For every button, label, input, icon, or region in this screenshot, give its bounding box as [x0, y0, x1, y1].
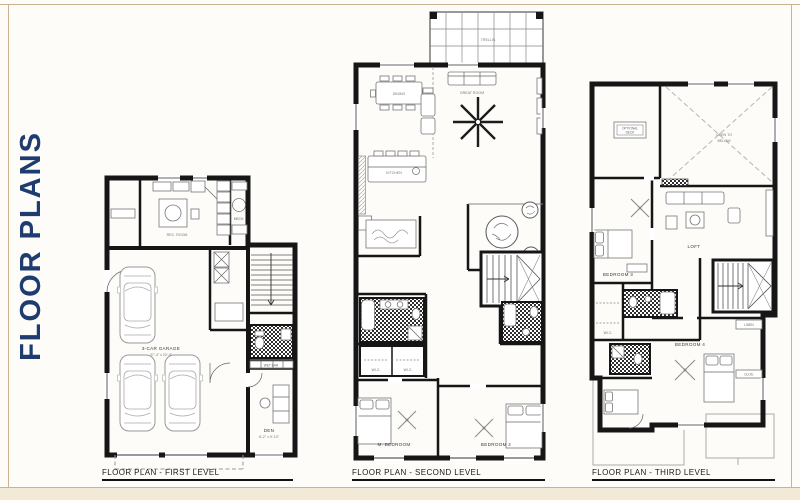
- study-nook: [366, 220, 416, 248]
- room-label: BEDROOM 4: [675, 342, 705, 347]
- sofa: [448, 72, 496, 85]
- second-level-caption: FLOOR PLAN - SECOND LEVEL: [352, 468, 545, 481]
- master-bathroom: [360, 298, 424, 342]
- walk-in-closet: W.I.C.: [596, 303, 620, 335]
- chair-icon: [260, 398, 270, 408]
- bathtub-icon: [660, 292, 675, 314]
- bathroom-2: [502, 302, 542, 342]
- first-level-plan: REC. ROOM MECH. 3-CAR GARAGE 37'-4" x 20…: [103, 173, 303, 473]
- mechanical-closet: MECH.: [232, 182, 247, 234]
- den: DEN 8'-2" x 9'-10": [259, 385, 289, 439]
- room-label: DINING: [393, 92, 406, 96]
- room-label: W.I.C.: [604, 331, 613, 335]
- water-heater-icon: [233, 199, 246, 212]
- den-door-gap: [246, 373, 250, 387]
- den-door-swing: [248, 373, 262, 387]
- third-level-plan: OPTIONAL DECK OPEN TO BELOW LOFT BEDRO: [588, 78, 784, 470]
- bathroom-a: [623, 264, 677, 317]
- room-label: TRELLIS: [481, 38, 496, 42]
- entry-bench: [111, 209, 135, 218]
- wet-bar: WET BAR: [250, 361, 293, 368]
- toilet-icon: [255, 337, 264, 349]
- first-level-caption: FLOOR PLAN - FIRST LEVEL: [102, 468, 293, 481]
- optional-room-label-box: OPTIONAL DECK: [614, 122, 646, 138]
- bedroom-2: BEDROOM 2: [475, 404, 542, 448]
- tree-icon: [486, 216, 518, 248]
- sink-icon: [281, 329, 291, 340]
- sink-icon: [523, 329, 530, 336]
- toilet-icon: [530, 307, 538, 318]
- tree-icon: [522, 202, 538, 218]
- laundry-room: [214, 252, 243, 321]
- toilet-icon: [629, 297, 637, 308]
- first-level-plan-drawing: REC. ROOM MECH. 3-CAR GARAGE 37'-4" x 20…: [103, 173, 303, 473]
- sink-icon: [645, 296, 651, 302]
- room-dimension: 37'-4" x 20'-8": [150, 353, 173, 357]
- bedroom-4: BEDROOM 4: [675, 342, 734, 402]
- door-gap: [683, 316, 697, 321]
- room-label: LINEN: [744, 323, 754, 327]
- kitchen: KITCHEN: [359, 151, 427, 230]
- sofa: [666, 192, 724, 204]
- ceiling-fan-icon: [675, 360, 695, 380]
- room-label: OPEN TO: [716, 133, 732, 137]
- trellis-post: [536, 12, 543, 19]
- room-label: LOFT: [688, 244, 701, 249]
- garage: 3-CAR GARAGE 37'-4" x 20'-8": [118, 267, 203, 431]
- staircase: [713, 260, 773, 312]
- rec-room-furniture: [153, 181, 230, 235]
- counter: [359, 156, 366, 214]
- room-dimension: 8'-2" x 9'-10": [259, 435, 280, 439]
- room-label: GREAT ROOM: [460, 91, 484, 95]
- chaise: [421, 94, 435, 116]
- master-bedroom: M. BEDROOM: [358, 398, 416, 447]
- room-label: W.I.C.: [404, 368, 413, 372]
- room-label: W.I.C.: [372, 368, 381, 372]
- room-label: BEDROOM 3: [603, 272, 633, 277]
- bottom-left-room: [604, 390, 643, 428]
- closet-label-boxes: LINEN CLOS.: [736, 320, 762, 378]
- great-room: GREAT ROOM: [421, 72, 542, 147]
- floor-plans-page: FLOOR PLANS: [0, 0, 800, 500]
- room-label: WET BAR: [264, 363, 279, 367]
- toilet-icon: [634, 354, 642, 365]
- third-level-plan-drawing: OPTIONAL DECK OPEN TO BELOW LOFT BEDRO: [588, 78, 784, 470]
- roof-trellis: TRELLIS: [430, 12, 543, 64]
- room-label: CLOS.: [744, 373, 754, 377]
- room-label: 3-CAR GARAGE: [142, 346, 180, 351]
- staircase: [251, 253, 293, 305]
- toilet-icon: [412, 309, 420, 320]
- room-label: DEN: [264, 428, 275, 433]
- bathroom: [250, 325, 293, 358]
- bathroom-b: [610, 344, 650, 374]
- staircase: [481, 252, 543, 306]
- room-label: MECH.: [234, 217, 244, 221]
- room-label: BEDROOM 2: [481, 442, 511, 447]
- right-border-line: [791, 4, 792, 487]
- page-title: FLOOR PLANS: [13, 76, 49, 416]
- garage-door-swing: [210, 363, 230, 383]
- door-gap: [388, 378, 402, 383]
- bottom-band: [0, 487, 800, 500]
- third-level-caption: FLOOR PLAN - THIRD LEVEL: [592, 468, 775, 481]
- loft: LOFT: [666, 190, 773, 249]
- door-gap: [644, 176, 654, 181]
- second-level-plan: TRELLIS DINING GREAT ROO: [350, 8, 550, 464]
- open-to-below: OPEN TO BELOW: [666, 87, 772, 182]
- second-level-plan-drawing: TRELLIS DINING GREAT ROO: [350, 8, 550, 464]
- door-gap: [650, 228, 655, 240]
- ceiling-fan-icon: [475, 419, 493, 437]
- walk-in-closet: W.I.C. W.I.C.: [360, 346, 424, 376]
- bathtub-icon: [504, 304, 516, 326]
- room-label: REC. ROOM: [167, 233, 188, 237]
- left-border-line: [8, 4, 9, 487]
- room-label: DECK: [626, 131, 636, 135]
- top-border-line: [0, 4, 800, 5]
- desk-icon: [273, 385, 289, 423]
- bathtub-icon: [362, 300, 375, 330]
- dining-area: DINING: [371, 76, 428, 110]
- room-label: KITCHEN: [386, 171, 402, 175]
- ceiling-fan-icon: [631, 199, 649, 217]
- room-label: BELOW: [718, 139, 732, 143]
- sink-icon: [413, 168, 420, 175]
- trellis-post: [430, 12, 437, 19]
- door-gap: [470, 384, 486, 389]
- room-label: M. BEDROOM: [377, 442, 410, 447]
- linen-tile-band: [662, 179, 688, 186]
- fan-motif: [453, 97, 503, 147]
- ceiling-fan-icon: [398, 411, 416, 429]
